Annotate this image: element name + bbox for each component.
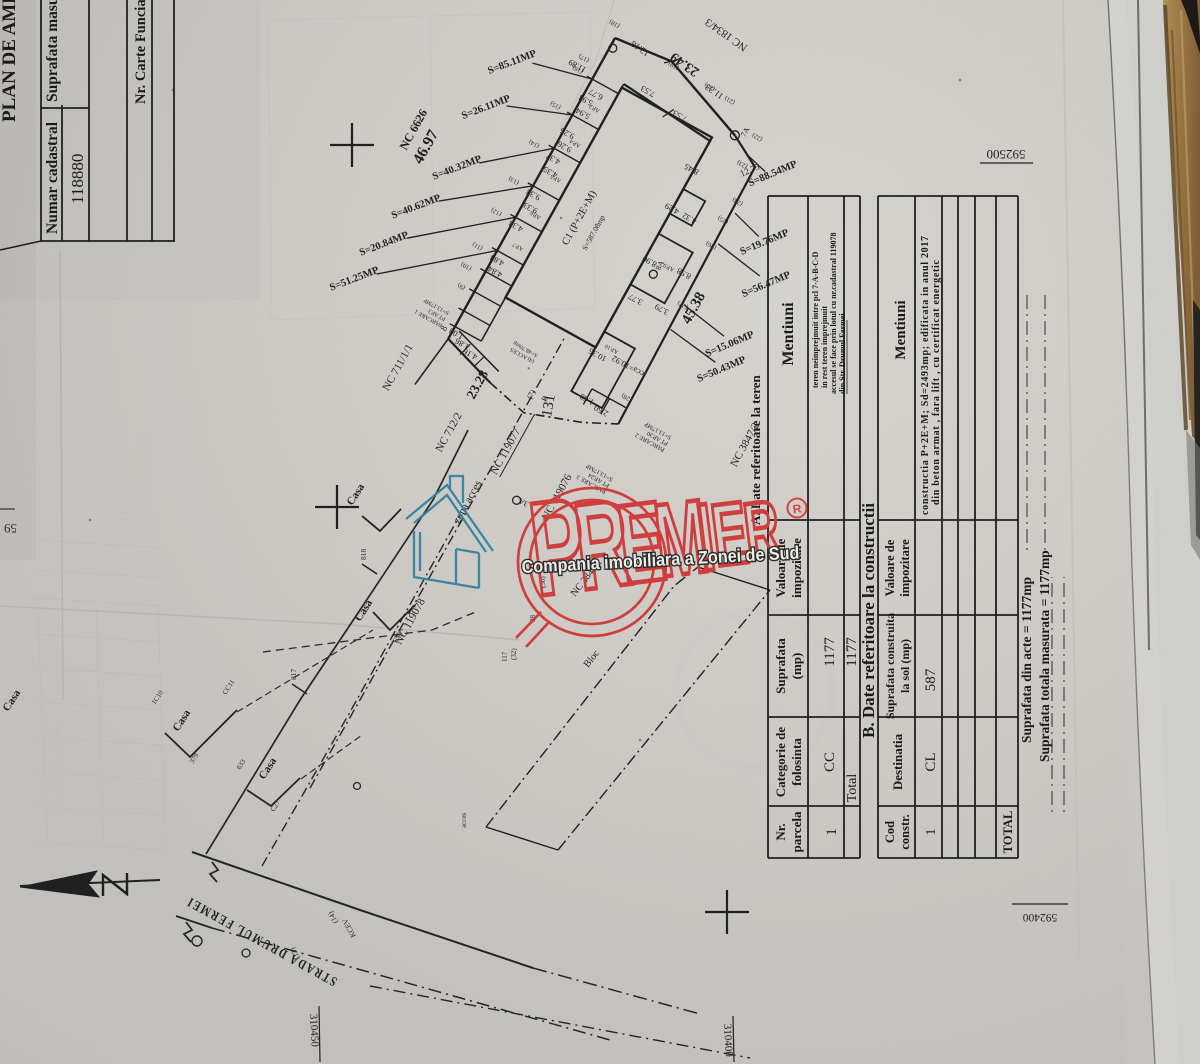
- svg-text:592400: 592400: [1023, 911, 1058, 923]
- svg-text:1: 1: [824, 828, 840, 836]
- svg-text:118880: 118880: [68, 154, 87, 204]
- svg-text:592500: 592500: [987, 147, 1026, 162]
- svg-text:din beton armat , fara lift ,: din beton armat , fara lift , cu certifi…: [931, 259, 942, 505]
- svg-text:impozitare: impozitare: [898, 539, 912, 597]
- svg-text:1177: 1177: [844, 637, 860, 667]
- svg-text:acces: acces: [460, 813, 468, 828]
- svg-text:Valoare de: Valoare de: [883, 539, 897, 596]
- svg-text:Cod: Cod: [883, 821, 897, 843]
- svg-text:la sol (mp): la sol (mp): [898, 639, 912, 693]
- svg-text:parcela: parcela: [789, 811, 804, 852]
- svg-text:117: 117: [501, 651, 509, 662]
- svg-text:Mentiuni: Mentiuni: [893, 300, 909, 359]
- svg-text:teren neimprejmuit intre pcl 7: teren neimprejmuit intre pcl 7-A-B-C-D: [811, 251, 820, 388]
- svg-text:constructia P+2E+M; Sd=2493mp: constructia P+2E+M; Sd=2493mp; edificata…: [920, 235, 931, 515]
- svg-text:Nr.: Nr.: [773, 823, 788, 840]
- svg-text:constr.: constr.: [898, 814, 912, 849]
- svg-text:818: 818: [359, 549, 368, 561]
- svg-text:accesul se face prin lotul cu: accesul se face prin lotul cu nr.cadastr…: [829, 233, 838, 394]
- svg-text:Suprafata: Suprafata: [773, 638, 788, 694]
- svg-text:587: 587: [923, 668, 939, 691]
- svg-text:Total: Total: [845, 774, 860, 803]
- svg-text:(mp): (mp): [789, 653, 804, 680]
- svg-text:B. Date referitoare la constru: B. Date referitoare la constructii: [859, 503, 878, 738]
- svg-text:Mentiuni: Mentiuni: [780, 302, 797, 366]
- svg-text:Suprafata totala masurata = 11: Suprafata totala masurata = 1177mp: [1037, 550, 1052, 762]
- svg-text:Suprafata din acte = 1177mp: Suprafata din acte = 1177mp: [1019, 577, 1034, 743]
- svg-text:PLAN DE AMPL: PLAN DE AMPL: [0, 0, 20, 122]
- svg-text:SUD BERCENI: SUD BERCENI: [119, 468, 131, 540]
- svg-text:817: 817: [289, 669, 298, 681]
- svg-text:1: 1: [924, 829, 939, 836]
- svg-text:Destinatia: Destinatia: [890, 733, 905, 790]
- svg-text:Nr. Carte Funciara: Nr. Carte Funciara: [133, 0, 149, 104]
- svg-text:TOTAL: TOTAL: [1001, 811, 1015, 854]
- svg-text:din Str. Drumul Fermei: din Str. Drumul Fermei: [838, 313, 847, 394]
- svg-text:(32): (32): [510, 648, 518, 660]
- svg-text:CL: CL: [923, 752, 939, 771]
- svg-text:CC: CC: [822, 752, 838, 772]
- svg-text:Numar cadastral: Numar cadastral: [44, 121, 61, 234]
- svg-text:DRELJARE TEREN: DRELJARE TEREN: [141, 427, 153, 520]
- svg-text:59: 59: [4, 521, 17, 536]
- svg-text:Suprafata masur: Suprafata masur: [44, 0, 61, 102]
- svg-text:Suprafata construita: Suprafata construita: [883, 613, 897, 719]
- svg-text:in rest teren imprejmuit: in rest teren imprejmuit: [820, 306, 829, 388]
